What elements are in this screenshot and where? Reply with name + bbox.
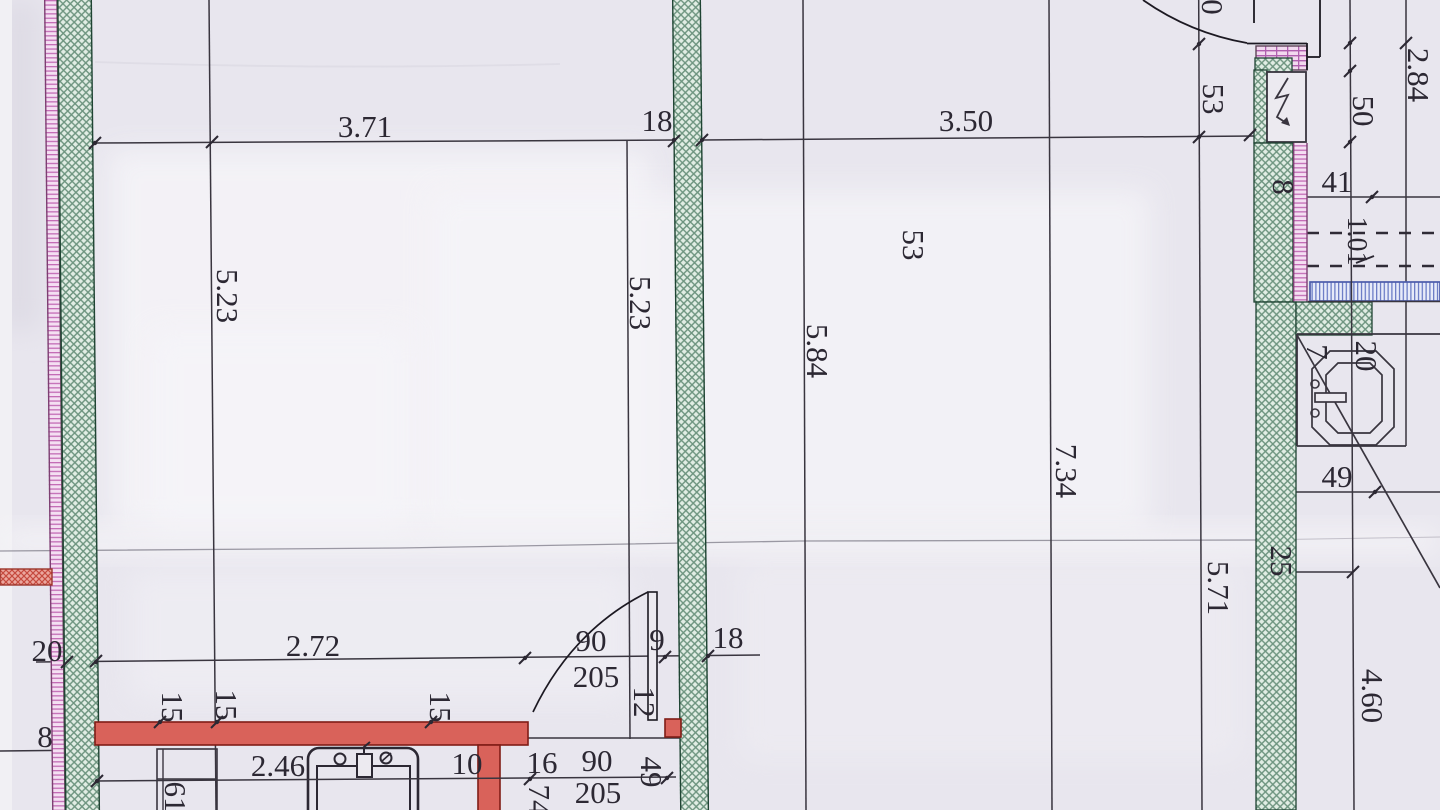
- svg-text:7.34: 7.34: [1049, 444, 1084, 499]
- svg-text:20: 20: [1349, 341, 1384, 372]
- svg-text:4.60: 4.60: [1355, 669, 1390, 723]
- svg-text:5.23: 5.23: [623, 276, 658, 330]
- svg-text:53: 53: [1196, 84, 1231, 115]
- svg-text:49: 49: [634, 757, 669, 788]
- svg-text:15: 15: [155, 692, 190, 723]
- svg-text:61: 61: [158, 782, 193, 810]
- svg-text:9: 9: [649, 622, 665, 657]
- svg-text:20: 20: [32, 633, 63, 668]
- svg-text:3.71: 3.71: [338, 109, 392, 144]
- svg-text:205: 205: [573, 659, 620, 694]
- svg-text:5.84: 5.84: [800, 324, 835, 379]
- svg-text:10: 10: [452, 746, 483, 781]
- svg-text:15: 15: [423, 692, 458, 723]
- svg-text:41: 41: [1322, 164, 1353, 199]
- svg-text:3.50: 3.50: [939, 103, 993, 138]
- svg-text:50: 50: [1346, 96, 1381, 127]
- svg-text:74: 74: [522, 785, 557, 810]
- svg-text:1.01: 1.01: [1341, 217, 1372, 266]
- svg-text:12: 12: [627, 687, 662, 718]
- svg-text:0: 0: [1195, 0, 1230, 15]
- svg-text:5.23: 5.23: [210, 269, 245, 323]
- svg-text:90: 90: [576, 623, 607, 658]
- svg-text:2.46: 2.46: [251, 748, 305, 783]
- svg-text:25: 25: [1264, 546, 1299, 577]
- svg-text:16: 16: [527, 745, 558, 780]
- svg-text:5.71: 5.71: [1201, 561, 1236, 615]
- svg-text:2.84: 2.84: [1401, 48, 1436, 103]
- svg-text:7: 7: [1300, 344, 1335, 360]
- svg-text:15: 15: [209, 690, 244, 721]
- svg-text:90: 90: [582, 743, 613, 778]
- svg-text:49: 49: [1322, 459, 1353, 494]
- svg-text:8: 8: [37, 719, 53, 754]
- svg-text:2.72: 2.72: [286, 628, 340, 663]
- svg-text:205: 205: [575, 775, 622, 810]
- svg-text:18: 18: [713, 620, 744, 655]
- svg-text:18: 18: [642, 103, 673, 138]
- svg-text:53: 53: [896, 230, 931, 261]
- svg-text:8: 8: [1266, 179, 1301, 195]
